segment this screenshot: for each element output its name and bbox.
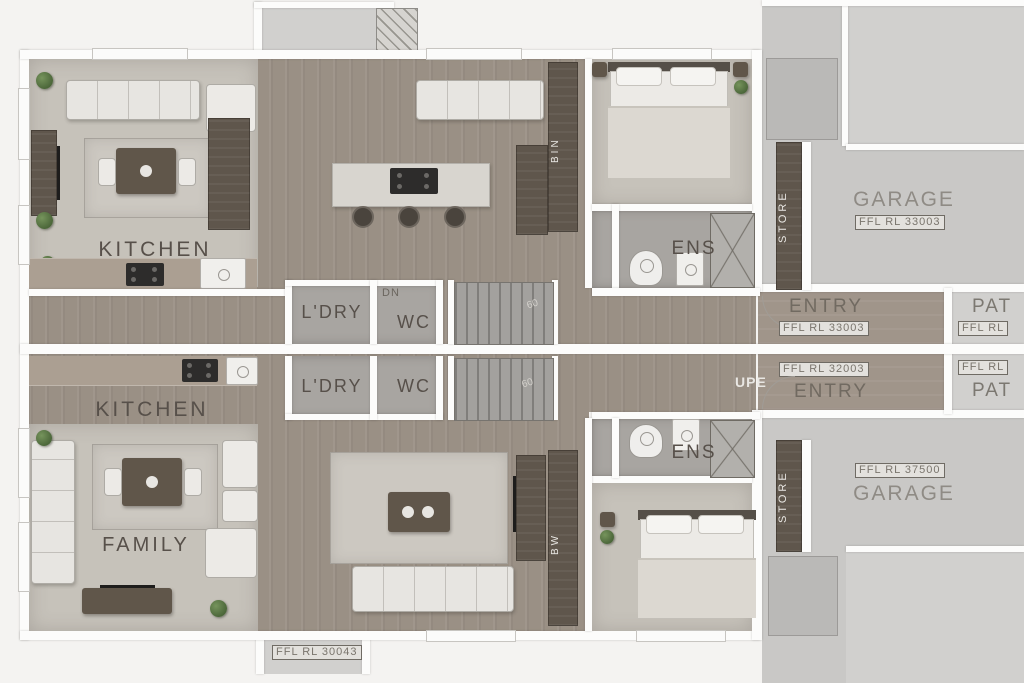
entry-label-bottom: ENTRY (785, 381, 877, 403)
bedroom-wall-top (585, 59, 592, 288)
nightstand-icon (592, 62, 607, 77)
window (612, 48, 712, 60)
cabinet-icon (208, 118, 250, 230)
family-label: FAMILY (85, 534, 207, 557)
patio-label-top: PAT (972, 296, 1024, 318)
porch-bottom-wall-right (362, 636, 370, 674)
garage-slab-bottom (768, 556, 838, 636)
garage-joint-wall (842, 6, 848, 146)
tv-unit-icon (82, 588, 172, 614)
store-label-top: STORE (777, 158, 801, 276)
tv-icon (100, 585, 155, 588)
porch-void-hatch (376, 8, 418, 52)
bed-icon (638, 510, 756, 618)
coffee-table-icon (388, 492, 450, 532)
sink-icon (226, 357, 258, 385)
sofa-icon (31, 440, 75, 584)
party-wall (20, 344, 1024, 354)
tv-unit-icon (31, 130, 57, 216)
store-label-bottom: STORE (777, 452, 801, 542)
plant-icon (36, 72, 53, 89)
floor-plan: KITCHEN L'DRY WC DN 60 BIN ENS STO (0, 0, 1024, 683)
garage-panel-top (846, 6, 1024, 146)
porch-wall-left (254, 2, 262, 56)
plant-icon (734, 80, 748, 94)
laundry-wall (370, 356, 377, 420)
porch-wall-top (254, 2, 394, 8)
tall-cabinet-icon (516, 145, 548, 235)
entry-level-top: FFL RL 33003 (779, 321, 869, 336)
sink-icon (200, 258, 246, 289)
window (426, 48, 522, 60)
laundry-wall (285, 356, 292, 420)
garage-top-wall (762, 0, 1024, 6)
nightstand-icon (733, 62, 748, 77)
bin-label-bottom: BW (550, 512, 576, 576)
garage-door-line-top (846, 144, 1024, 150)
media-unit-icon (516, 455, 546, 561)
chair-icon (104, 468, 122, 496)
window (18, 205, 30, 265)
kitchen-wall-top (29, 289, 285, 296)
bedroom-wall-bottom (585, 418, 592, 631)
chair-icon (98, 158, 116, 186)
stool-icon (398, 206, 420, 228)
window (18, 522, 30, 592)
laundry-wall (285, 280, 292, 344)
tv-icon (57, 146, 60, 200)
stool-icon (352, 206, 374, 228)
laundry-wall (436, 280, 443, 344)
tv-icon (513, 476, 516, 532)
garage-label-bottom: GARAGE (850, 482, 958, 506)
ensuite-wall (612, 204, 619, 288)
plant-icon (36, 212, 53, 229)
toilet-icon (629, 250, 663, 286)
bin-label-top: BIN (550, 118, 576, 182)
cooktop-icon (126, 263, 164, 286)
stair-direction-label-bottom: UPE (735, 374, 767, 390)
entry-level-bottom: FFL RL 32003 (779, 362, 869, 377)
stair-direction-label-top: DN (382, 287, 400, 299)
window (92, 48, 188, 60)
window (636, 630, 726, 642)
ensuite-wall (612, 418, 619, 478)
garage-level-top: FFL RL 33003 (855, 215, 945, 230)
appliance-icon (222, 490, 258, 522)
laundry-wall (285, 280, 443, 286)
wc-label-top: WC (392, 312, 436, 333)
kitchen-bench (29, 356, 257, 386)
nightstand-icon (600, 512, 615, 527)
bed-icon (608, 62, 730, 178)
toilet-icon (629, 424, 663, 458)
staircase-up (454, 358, 554, 421)
laundry-wall (285, 414, 443, 420)
laundry-wall (436, 356, 443, 420)
dining-table-icon (116, 148, 176, 194)
ensuite-label-bottom: ENS (666, 442, 722, 464)
cooktop-icon (182, 359, 218, 382)
window (426, 630, 516, 642)
staircase-down (454, 282, 554, 345)
kitchen-label-bottom: KITCHEN (82, 398, 222, 422)
window (18, 428, 30, 498)
chair-icon (184, 468, 202, 496)
plant-icon (36, 430, 52, 446)
porch-bottom-wall-left (256, 636, 264, 674)
sofa-icon (416, 80, 544, 120)
plant-icon (210, 600, 227, 617)
porch-floor-top (260, 8, 386, 56)
ensuite-wall (592, 288, 760, 296)
chair-icon (178, 158, 196, 186)
window (18, 88, 30, 160)
entry-label-top: ENTRY (780, 296, 872, 318)
garage-panel-bottom (846, 552, 1024, 683)
ensuite-label-top: ENS (666, 238, 722, 260)
stool-icon (444, 206, 466, 228)
laundry-label-bottom: L'DRY (296, 376, 368, 397)
patio-level-top: FFL RL (958, 321, 1008, 336)
garage-door-line-bottom (846, 546, 1024, 552)
sofa-icon (66, 80, 200, 120)
garage-slab-top (766, 58, 838, 140)
garage-level-bottom: FFL RL 37500 (855, 463, 945, 478)
laundry-label-top: L'DRY (296, 302, 368, 323)
sofa-icon (352, 566, 514, 612)
wc-label-bottom: WC (392, 376, 436, 397)
patio-level-bottom: FFL RL (958, 360, 1008, 375)
porch-level-bottom: FFL RL 30043 (272, 645, 362, 660)
store-wall-top (802, 142, 811, 290)
entry-wall-bottom (756, 410, 1024, 418)
dining-table-icon (122, 458, 182, 506)
island-cooktop-icon (390, 168, 438, 194)
appliance-icon (222, 440, 258, 488)
laundry-wall (370, 280, 377, 344)
patio-label-bottom: PAT (972, 380, 1024, 402)
garage-label-top: GARAGE (850, 188, 958, 212)
armchair-icon (205, 528, 257, 578)
plant-icon (600, 530, 614, 544)
store-wall-bottom (802, 440, 811, 552)
